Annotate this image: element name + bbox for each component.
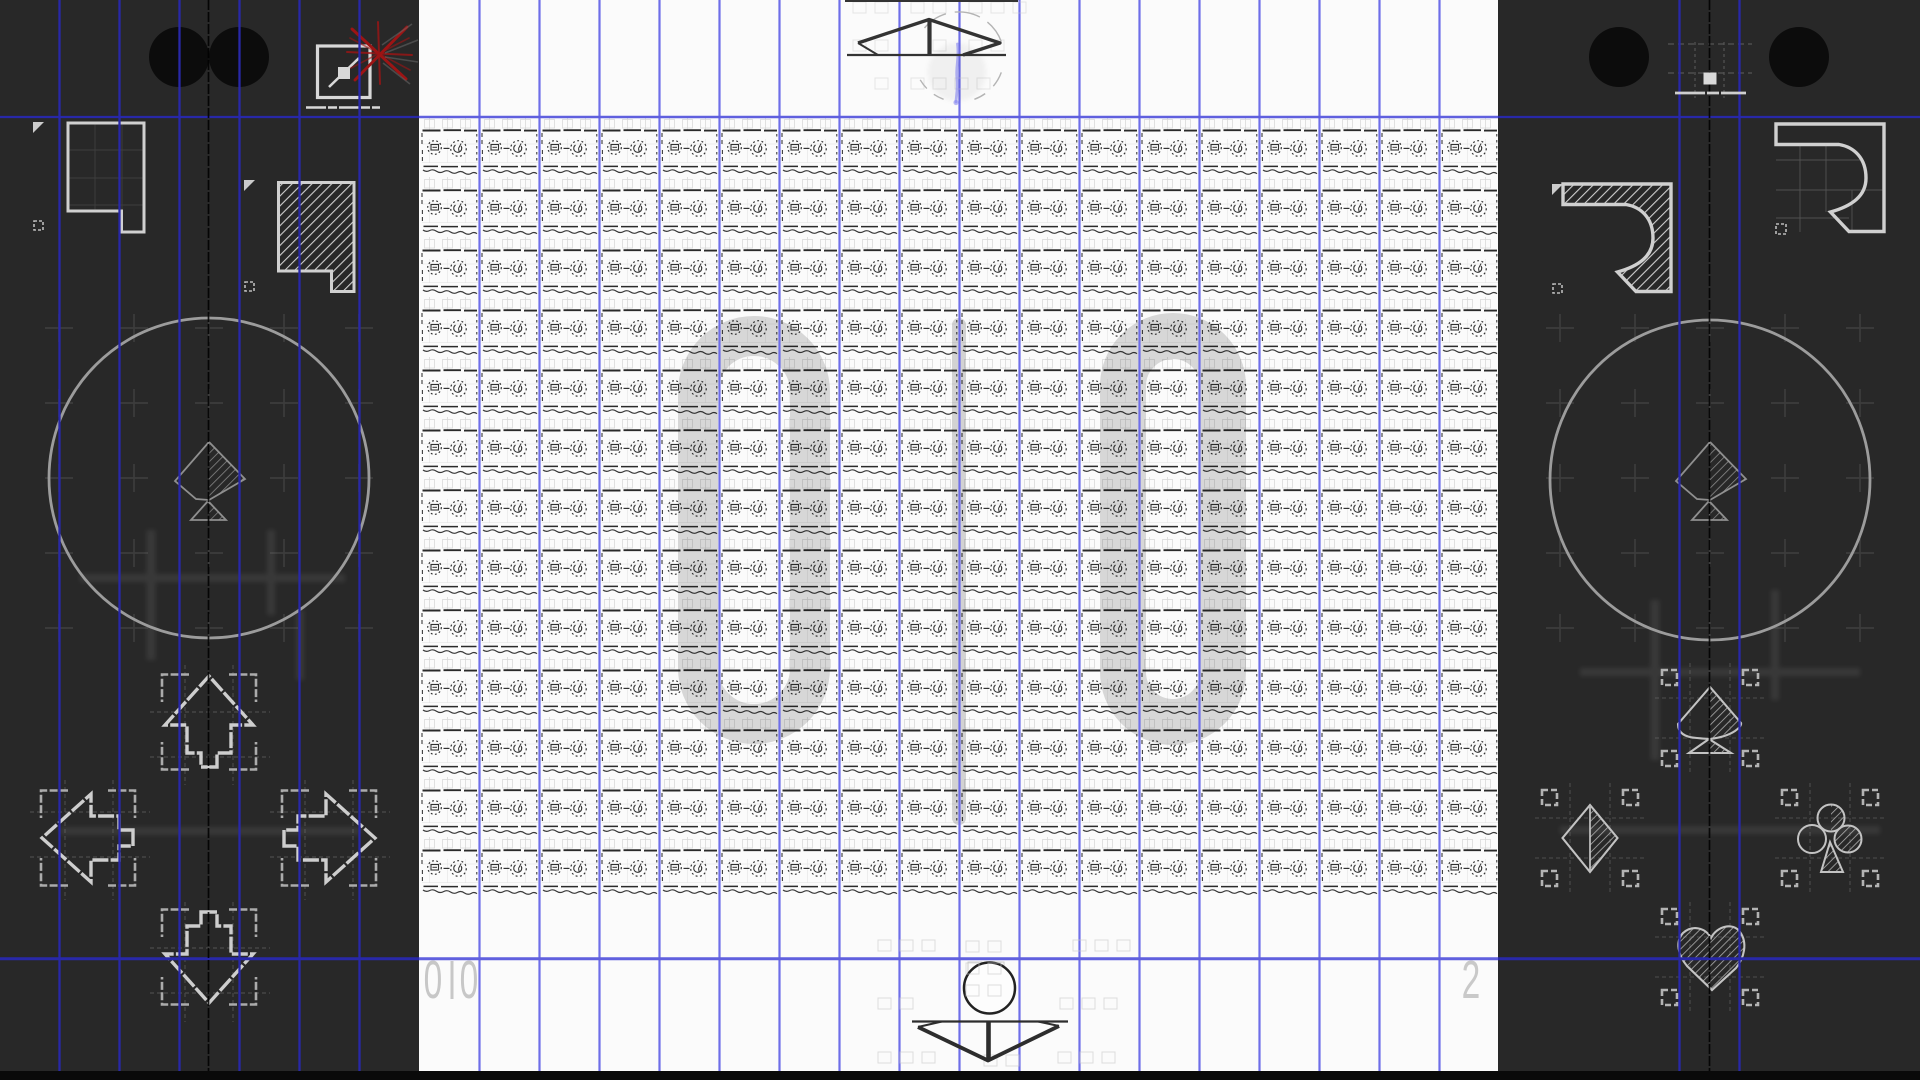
svg-text:0: 0 [424, 949, 443, 1010]
svg-text:0: 0 [460, 949, 479, 1010]
svg-text:2: 2 [1462, 949, 1481, 1010]
